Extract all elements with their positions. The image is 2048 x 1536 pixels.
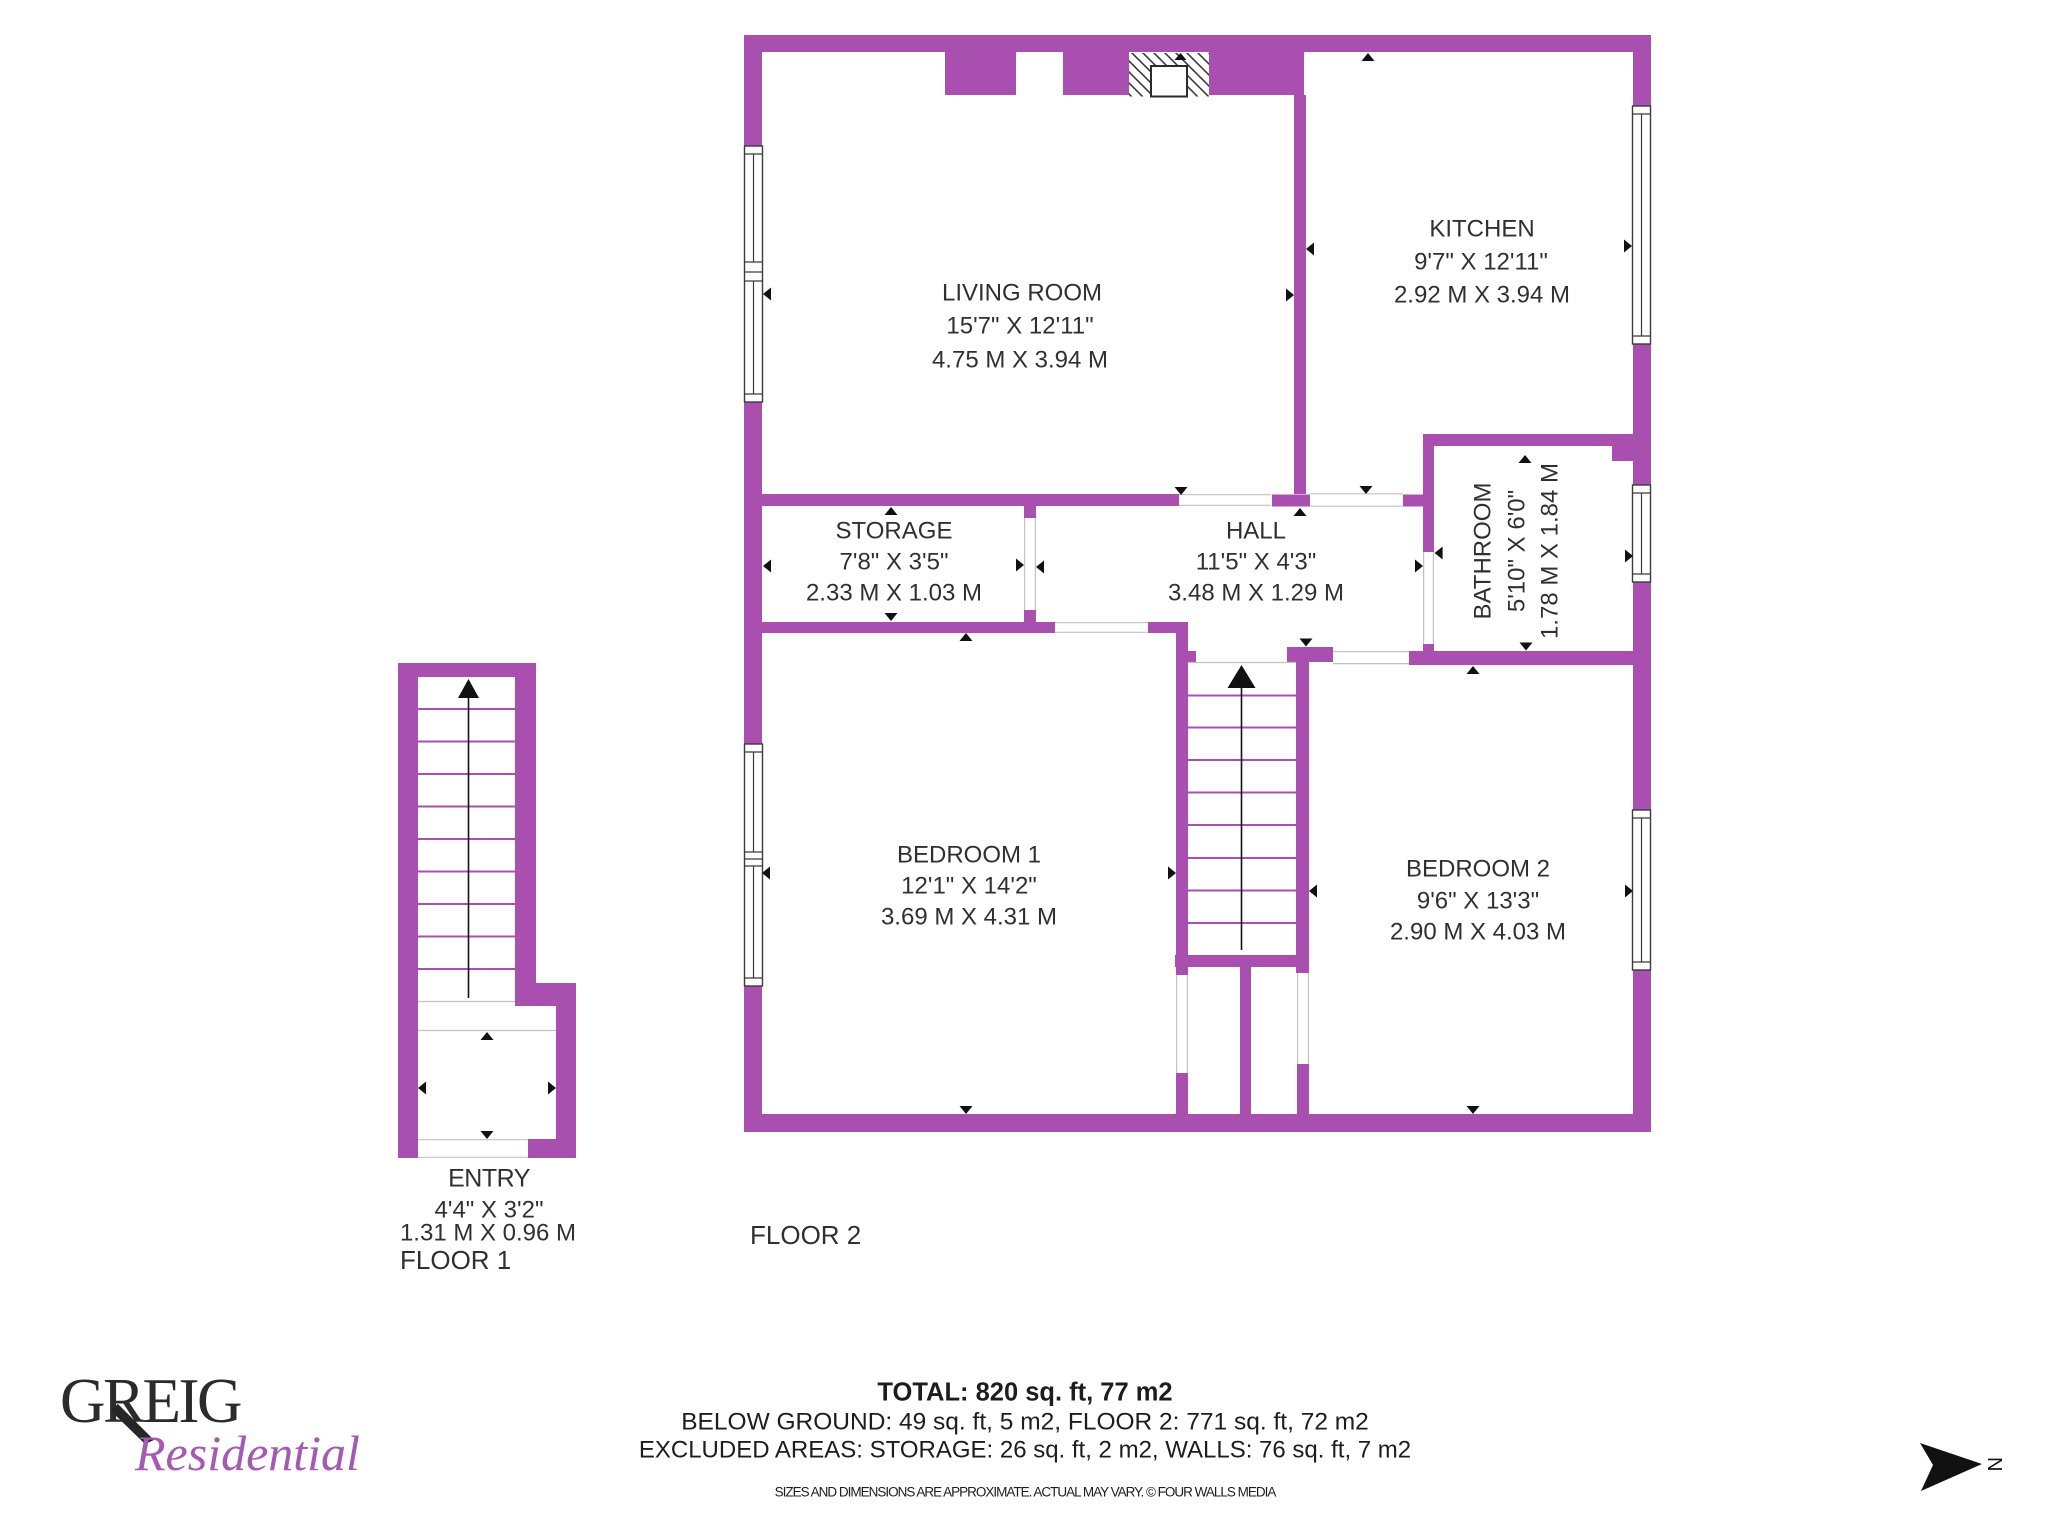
svg-text:KITCHEN: KITCHEN	[1429, 215, 1534, 242]
svg-text:2.90 M X 4.03 M: 2.90 M X 4.03 M	[1390, 918, 1566, 945]
svg-text:2.92 M X 3.94 M: 2.92 M X 3.94 M	[1394, 281, 1570, 308]
svg-text:EXCLUDED AREAS: STORAGE: 26 sq: EXCLUDED AREAS: STORAGE: 26 sq. ft, 2 m2…	[639, 1436, 1411, 1463]
svg-text:ENTRY: ENTRY	[448, 1165, 531, 1193]
svg-text:FLOOR 2: FLOOR 2	[750, 1220, 861, 1250]
svg-text:LIVING ROOM: LIVING ROOM	[942, 279, 1102, 306]
svg-text:TOTAL: 820 sq. ft, 77 m2: TOTAL: 820 sq. ft, 77 m2	[877, 1379, 1172, 1407]
svg-text:2.33 M X 1.03 M: 2.33 M X 1.03 M	[806, 579, 982, 606]
svg-text:FLOOR 1: FLOOR 1	[400, 1245, 511, 1275]
svg-text:15'7" X 12'11": 15'7" X 12'11"	[946, 312, 1093, 339]
svg-text:BEDROOM 1: BEDROOM 1	[897, 841, 1041, 868]
svg-text:5'10" X 6'0": 5'10" X 6'0"	[1503, 490, 1530, 612]
svg-text:4.75 M X 3.94 M: 4.75 M X 3.94 M	[932, 346, 1108, 373]
svg-text:Residential: Residential	[134, 1425, 360, 1481]
svg-text:BATHROOM: BATHROOM	[1469, 483, 1496, 620]
svg-text:N: N	[1983, 1457, 2005, 1471]
svg-text:STORAGE: STORAGE	[836, 517, 953, 544]
svg-text:9'6" X 13'3": 9'6" X 13'3"	[1417, 887, 1539, 914]
svg-text:SIZES AND DIMENSIONS ARE APPRO: SIZES AND DIMENSIONS ARE APPROXIMATE. AC…	[775, 1485, 1277, 1500]
svg-text:1.78 M X 1.84 M: 1.78 M X 1.84 M	[1536, 463, 1563, 639]
svg-text:3.48 M X 1.29 M: 3.48 M X 1.29 M	[1168, 579, 1344, 606]
svg-text:12'1" X 14'2": 12'1" X 14'2"	[901, 872, 1037, 899]
svg-text:BELOW GROUND: 49 sq. ft, 5 m2,: BELOW GROUND: 49 sq. ft, 5 m2, FLOOR 2: …	[681, 1408, 1369, 1435]
svg-text:7'8" X 3'5": 7'8" X 3'5"	[840, 548, 949, 575]
svg-text:1.31 M X 0.96 M: 1.31 M X 0.96 M	[400, 1219, 576, 1246]
svg-text:HALL: HALL	[1226, 517, 1286, 544]
svg-text:3.69 M X 4.31 M: 3.69 M X 4.31 M	[881, 903, 1057, 930]
svg-text:9'7" X 12'11": 9'7" X 12'11"	[1414, 248, 1548, 275]
svg-text:11'5" X 4'3": 11'5" X 4'3"	[1196, 548, 1317, 575]
svg-text:BEDROOM 2: BEDROOM 2	[1406, 855, 1550, 882]
